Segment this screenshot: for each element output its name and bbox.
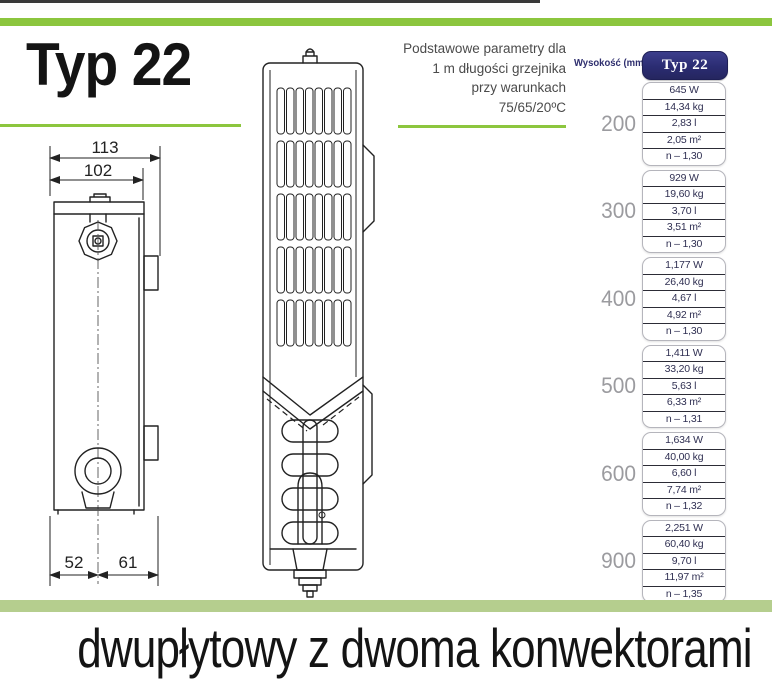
height-value: 200	[590, 111, 636, 137]
cutaway-break	[263, 377, 363, 431]
table-cell: 2,05 m²	[643, 132, 725, 149]
table-group-box: 1,177 W26,40 kg4,67 l4,92 m²n – 1,30	[642, 257, 726, 341]
table-cell: 14,34 kg	[643, 99, 725, 116]
wall-bracket-top	[144, 256, 158, 290]
table-group: 4001,177 W26,40 kg4,67 l4,92 m²n – 1,30	[588, 257, 748, 341]
title-underline	[0, 124, 241, 127]
table-cell: 33,20 kg	[643, 361, 725, 378]
table-groups: 200645 W14,34 kg2,83 l2,05 m²n – 1,30300…	[588, 82, 748, 607]
table-cell: 26,40 kg	[643, 274, 725, 291]
table-group: 9002,251 W60,40 kg9,70 l11,97 m²n – 1,35	[588, 520, 748, 604]
table-cell: 3,70 l	[643, 203, 725, 220]
table-cell: 7,74 m²	[643, 482, 725, 499]
table-cell: 5,63 l	[643, 378, 725, 395]
table-group-box: 2,251 W60,40 kg9,70 l11,97 m²n – 1,35	[642, 520, 726, 604]
table-cell: n – 1,31	[643, 411, 725, 428]
note-line: 75/65/20ºC	[368, 98, 566, 118]
table-cell: n – 1,30	[643, 148, 725, 165]
table-cell: 929 W	[643, 171, 725, 187]
table-cell: 4,92 m²	[643, 307, 725, 324]
side-view-drawing: 113 102 52 61	[18, 138, 208, 598]
table-cell: 4,67 l	[643, 290, 725, 307]
table-cell: 2,83 l	[643, 115, 725, 132]
table-cell: n – 1,32	[643, 498, 725, 515]
table-cell: 60,40 kg	[643, 536, 725, 553]
height-value: 600	[590, 461, 636, 487]
table-cell: 19,60 kg	[643, 186, 725, 203]
table-cell: 3,51 m²	[643, 219, 725, 236]
table-group: 5001,411 W33,20 kg5,63 l6,33 m²n – 1,31	[588, 345, 748, 429]
radiator-body-side	[54, 202, 144, 510]
table-cell: 9,70 l	[643, 553, 725, 570]
height-value: 500	[590, 373, 636, 399]
table-cell: 1,177 W	[643, 258, 725, 274]
height-value: 300	[590, 198, 636, 224]
dim-52-label: 52	[65, 553, 84, 572]
table-group: 6001,634 W40,00 kg6,60 l7,74 m²n – 1,32	[588, 432, 748, 516]
rear-bracket-top	[363, 145, 374, 232]
dim-61-label: 61	[119, 553, 138, 572]
bottom-accent-bar	[0, 600, 772, 612]
page-title: Typ 22	[26, 30, 191, 99]
table-group-box: 929 W19,60 kg3,70 l3,51 m²n – 1,30	[642, 170, 726, 254]
note-line: przy warunkach	[368, 78, 566, 98]
table-cell: 6,33 m²	[643, 394, 725, 411]
height-value: 900	[590, 548, 636, 574]
table-group: 300929 W19,60 kg3,70 l3,51 m²n – 1,30	[588, 170, 748, 254]
table-cell: 11,97 m²	[643, 569, 725, 586]
table-cell: 6,60 l	[643, 465, 725, 482]
table-cell: 40,00 kg	[643, 449, 725, 466]
dim-102-label: 102	[84, 161, 112, 180]
badge-label: Typ 22	[662, 57, 708, 74]
table-group-box: 645 W14,34 kg2,83 l2,05 m²n – 1,30	[642, 82, 726, 166]
table-group-box: 1,411 W33,20 kg5,63 l6,33 m²n – 1,31	[642, 345, 726, 429]
grille-slots	[277, 88, 351, 346]
height-column-label: Wysokość (mm)	[574, 58, 637, 69]
height-value: 400	[590, 286, 636, 312]
note-line: Podstawowe parametry dla	[368, 39, 566, 59]
typ-22-header-badge: Typ 22	[642, 51, 728, 80]
drain-valve-icon	[270, 549, 356, 597]
table-cell: 2,251 W	[643, 521, 725, 537]
parameters-note: Podstawowe parametry dla 1 m długości gr…	[368, 39, 566, 117]
note-underline	[398, 125, 566, 128]
table-cell: n – 1,30	[643, 323, 725, 340]
wall-bracket-bottom	[144, 426, 158, 460]
dim-113-label: 113	[91, 138, 118, 157]
radiator-type-description: dwupłytowy z dwoma konwektorami	[77, 616, 695, 680]
rear-bracket-bottom	[363, 385, 372, 484]
table-cell: 1,634 W	[643, 433, 725, 449]
table-cell: n – 1,30	[643, 236, 725, 253]
table-group-box: 1,634 W40,00 kg6,60 l7,74 m²n – 1,32	[642, 432, 726, 516]
convector-fins	[282, 420, 338, 544]
table-group: 200645 W14,34 kg2,83 l2,05 m²n – 1,30	[588, 82, 748, 166]
air-vent-icon	[303, 49, 317, 63]
scan-edge-artifact	[0, 0, 540, 3]
table-cell: 645 W	[643, 83, 725, 99]
note-line: 1 m długości grzejnika	[368, 59, 566, 79]
table-cell: 1,411 W	[643, 346, 725, 362]
